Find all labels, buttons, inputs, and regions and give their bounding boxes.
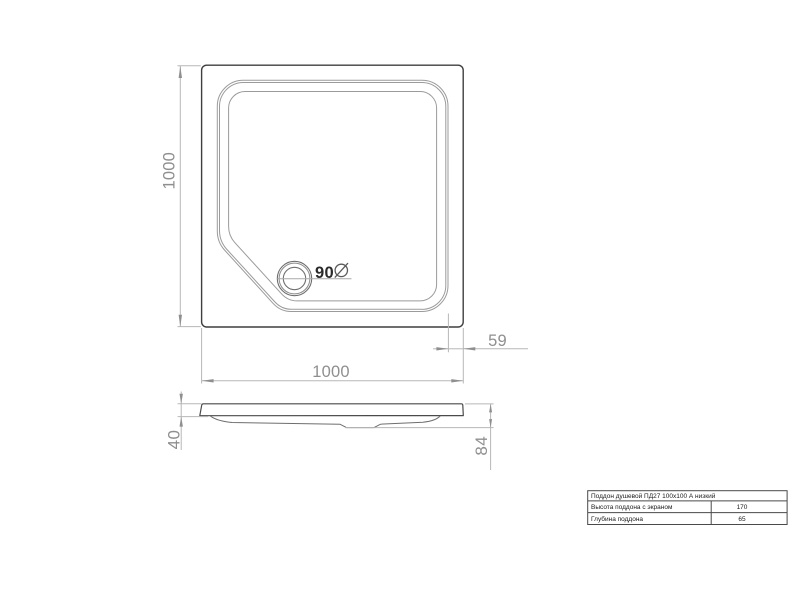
svg-text:40: 40 xyxy=(164,430,183,450)
svg-text:84: 84 xyxy=(472,436,491,456)
svg-text:170: 170 xyxy=(737,504,748,511)
svg-text:65: 65 xyxy=(738,516,746,523)
svg-text:Поддон душевой ПД27 100х100 А: Поддон душевой ПД27 100х100 А низкий xyxy=(591,492,716,500)
svg-text:1000: 1000 xyxy=(312,363,350,381)
svg-text:59: 59 xyxy=(488,332,507,350)
svg-text:1000: 1000 xyxy=(161,152,179,190)
svg-text:Глубина поддона: Глубина поддона xyxy=(591,515,643,523)
svg-text:Высота поддона с экраном: Высота поддона с экраном xyxy=(591,504,673,511)
svg-text:90: 90 xyxy=(315,264,334,282)
